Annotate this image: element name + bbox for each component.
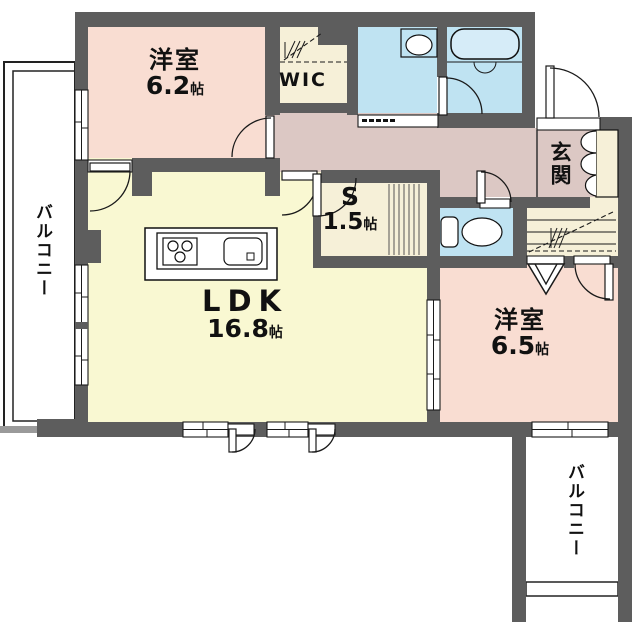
bedroom1-unit: 帖	[190, 82, 204, 98]
ldk-name: LDK	[160, 286, 330, 316]
label-bedroom1: 洋室 6.2帖	[100, 48, 250, 99]
balcony-bottom-outline	[526, 582, 618, 596]
bedroom2-unit: 帖	[535, 342, 549, 358]
storage-hatch	[389, 184, 419, 255]
label-entrance: 玄関	[545, 132, 571, 196]
sliding-door-ldk-bedroom2	[427, 300, 440, 410]
bedroom1-size: 6.2	[146, 71, 190, 100]
kitchen-counter	[145, 228, 277, 280]
label-ldk: LDK 16.8帖	[160, 286, 330, 343]
passage-floor	[590, 197, 618, 208]
bedroom1-name: 洋室	[100, 48, 250, 73]
sill-bedroom2-door	[574, 256, 610, 264]
storage-name: S	[310, 184, 390, 210]
entry-door	[546, 66, 599, 118]
window-ldk-south-a	[183, 422, 228, 437]
label-wic: WIC	[268, 71, 338, 91]
storage-unit: 帖	[363, 217, 377, 233]
toilet-icon	[441, 217, 502, 247]
bedroom2-name: 洋室	[445, 308, 595, 333]
label-balcony-left: バルコニー	[28, 160, 50, 340]
bedroom2-size: 6.5	[491, 331, 535, 360]
floor-plan: 洋室 6.2帖 WIC 玄関 S 1.5帖 LDK 16.8帖 洋室 6.5帖 …	[0, 0, 640, 640]
sill-entry-door	[537, 118, 600, 130]
shoe-cabinet-icon	[581, 130, 618, 197]
window-bedroom1-west	[75, 90, 88, 160]
label-bedroom2: 洋室 6.5帖	[445, 308, 595, 359]
ground-line	[0, 426, 38, 433]
sliding-door-washroom	[358, 115, 438, 127]
ldk-unit: 帖	[269, 325, 283, 341]
kitchen-sink-icon	[224, 238, 262, 265]
window-bedroom2-south	[532, 422, 608, 437]
ldk-size: 16.8	[207, 314, 269, 343]
storage-size: 1.5	[323, 209, 364, 235]
window-ldk-west	[75, 265, 88, 385]
sill-closet-fold-door	[527, 256, 564, 264]
label-storage: S 1.5帖	[310, 184, 390, 234]
window-ldk-south-b	[267, 422, 308, 437]
label-balcony-bottom: バルコニー	[560, 450, 582, 570]
